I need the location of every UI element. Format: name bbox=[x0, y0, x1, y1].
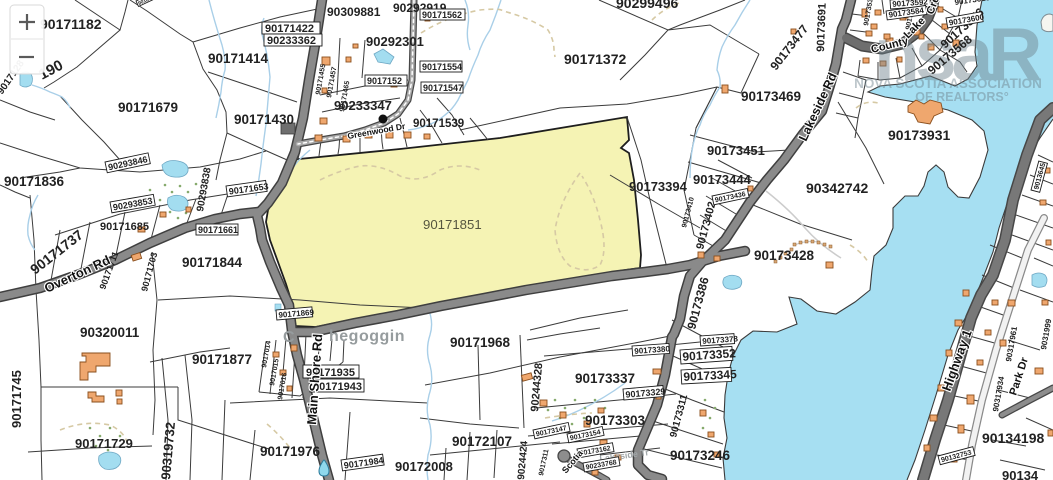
svg-text:90173394: 90173394 bbox=[629, 179, 688, 194]
svg-text:90171851: 90171851 bbox=[423, 217, 482, 232]
svg-text:90173337: 90173337 bbox=[575, 371, 635, 386]
svg-text:90173303: 90173303 bbox=[585, 413, 646, 428]
svg-text:90172008: 90172008 bbox=[395, 459, 453, 474]
svg-text:90299496: 90299496 bbox=[616, 0, 679, 11]
svg-text:90173691: 90173691 bbox=[815, 3, 829, 52]
svg-text:90173451: 90173451 bbox=[707, 143, 765, 158]
svg-text:90171182: 90171182 bbox=[40, 16, 102, 32]
svg-text:90171745: 90171745 bbox=[9, 370, 24, 428]
svg-text:90134198: 90134198 bbox=[982, 430, 1045, 446]
svg-text:90171372: 90171372 bbox=[564, 51, 627, 67]
svg-text:90171554: 90171554 bbox=[422, 62, 462, 72]
svg-text:90171679: 90171679 bbox=[118, 100, 178, 115]
svg-text:90342742: 90342742 bbox=[806, 180, 869, 196]
svg-text:90233362: 90233362 bbox=[267, 35, 316, 47]
svg-text:90173931: 90173931 bbox=[888, 127, 951, 143]
svg-text:90171685: 90171685 bbox=[100, 221, 149, 233]
svg-text:90173246: 90173246 bbox=[670, 448, 731, 463]
svg-text:90309881: 90309881 bbox=[327, 5, 381, 19]
svg-text:OF REALTORS°: OF REALTORS° bbox=[915, 90, 1008, 104]
svg-text:90171976: 90171976 bbox=[260, 444, 321, 459]
svg-text:90171844: 90171844 bbox=[182, 255, 243, 270]
svg-text:90173444: 90173444 bbox=[693, 172, 752, 187]
svg-text:90171661: 90171661 bbox=[198, 225, 238, 235]
svg-text:90292301: 90292301 bbox=[366, 34, 424, 49]
svg-text:90320011: 90320011 bbox=[80, 325, 140, 340]
svg-text:90171547: 90171547 bbox=[423, 83, 463, 93]
svg-text:90171836: 90171836 bbox=[4, 174, 65, 189]
svg-text:90171422: 90171422 bbox=[265, 23, 314, 35]
svg-text:90171539: 90171539 bbox=[413, 118, 464, 130]
svg-text:90171414: 90171414 bbox=[208, 51, 269, 66]
svg-text:90172107: 90172107 bbox=[452, 434, 512, 449]
svg-text:90171877: 90171877 bbox=[192, 352, 252, 367]
svg-text:90171562: 90171562 bbox=[422, 10, 462, 20]
svg-text:90173345: 90173345 bbox=[683, 367, 737, 384]
svg-text:C: C bbox=[283, 329, 295, 346]
svg-text:hegoggin: hegoggin bbox=[329, 328, 405, 345]
svg-text:9017152: 9017152 bbox=[367, 76, 402, 86]
svg-text:NOVA SCOTIA ASSOCIATION: NOVA SCOTIA ASSOCIATION bbox=[854, 76, 1042, 91]
svg-text:90171430: 90171430 bbox=[234, 112, 294, 127]
svg-text:90171729: 90171729 bbox=[75, 436, 133, 451]
svg-text:90134: 90134 bbox=[1002, 468, 1039, 480]
svg-text:90171968: 90171968 bbox=[450, 335, 511, 350]
svg-text:90173469: 90173469 bbox=[741, 89, 801, 104]
svg-text:90173428: 90173428 bbox=[754, 248, 815, 263]
